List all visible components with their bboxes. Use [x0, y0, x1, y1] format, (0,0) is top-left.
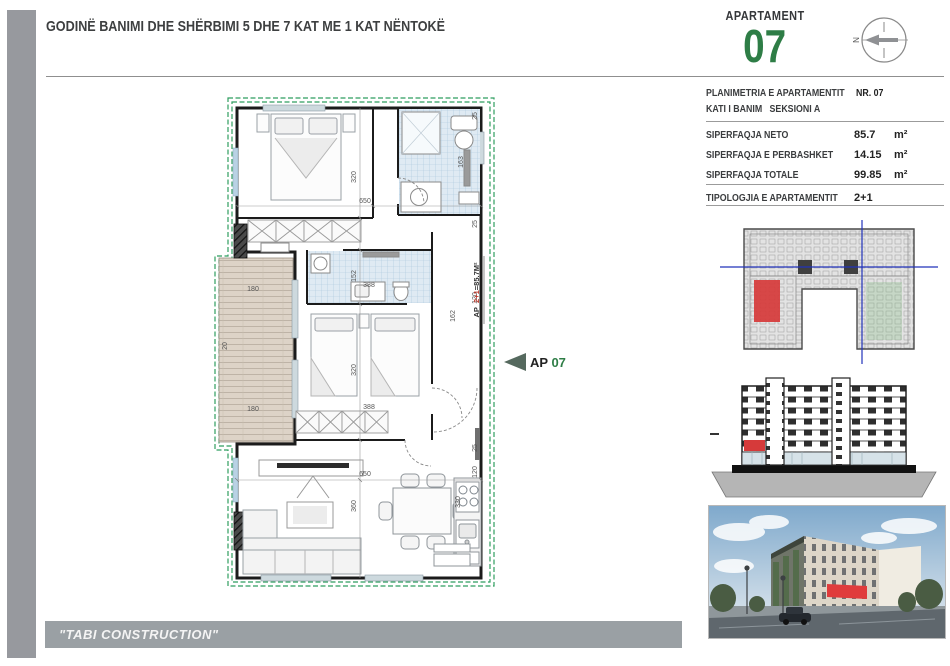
apartment-number: 07 [744, 24, 787, 68]
page-title: GODINË BANIMI DHE SHËRBIMI 5 DHE 7 KAT M… [46, 18, 521, 35]
area-totale-value: 99.85 [854, 169, 882, 181]
planimetria-label: PLANIMETRIA E APARTAMENTIT [706, 87, 845, 99]
svg-text:AP_2+1=85.7M²: AP_2+1=85.7M² [472, 262, 481, 318]
key-plan [714, 214, 944, 369]
area-totale-label: SIPERFAQJA TOTALE [706, 169, 798, 181]
tipologjia-label: TIPOLOGJIA E APARTAMENTIT [706, 192, 838, 204]
left-accent-bar [7, 10, 36, 658]
header-divider [46, 76, 944, 77]
svg-text:650: 650 [359, 471, 371, 478]
svg-text:180: 180 [247, 286, 259, 293]
building-render-photo [708, 505, 946, 639]
area-neto-value: 85.7 [854, 129, 875, 141]
info-divider-3 [706, 205, 944, 206]
render-building [771, 536, 921, 618]
section-highlight-unit [744, 440, 765, 451]
nr-label: NR. [856, 87, 871, 99]
svg-text:25: 25 [472, 444, 479, 452]
info-divider-1 [706, 121, 944, 122]
brand-name: "TABI CONSTRUCTION" [59, 627, 219, 642]
tipologjia-value: 2+1 [854, 192, 873, 204]
render-highlight-unit [827, 584, 867, 599]
seksioni-label: SEKSIONI A [770, 103, 821, 115]
svg-text:320: 320 [351, 364, 358, 376]
area-perbashket-value: 14.15 [854, 149, 882, 161]
svg-text:25: 25 [472, 220, 479, 228]
info-divider-2 [706, 184, 944, 185]
svg-text:388: 388 [363, 282, 375, 289]
area-neto-unit: m² [894, 129, 907, 141]
svg-text:120: 120 [472, 466, 479, 478]
svg-text:360: 360 [351, 500, 358, 512]
page: GODINË BANIMI DHE SHËRBIMI 5 DHE 7 KAT M… [0, 0, 950, 666]
section-tower-left [766, 378, 784, 465]
pointer-ap-number: 07 [551, 355, 565, 370]
page-title-text: GODINË BANIMI DHE SHËRBIMI 5 DHE 7 KAT M… [46, 18, 445, 35]
apartment-header: APARTAMENT 07 [700, 8, 830, 68]
svg-text:163: 163 [458, 156, 465, 168]
pointer-arrow-icon [504, 352, 526, 372]
section-base [732, 465, 916, 473]
double-bed-icon [257, 114, 355, 200]
section-ground [712, 472, 936, 497]
area-totale-unit: m² [894, 169, 907, 181]
svg-text:162: 162 [450, 310, 457, 322]
key-plan-highlight-unit [754, 280, 780, 322]
area-perbashket-unit: m² [894, 149, 907, 161]
wardrobe-corridor-icon [248, 220, 361, 242]
kati-label: KATI I BANIM [706, 103, 762, 115]
apartment-info-panel: PLANIMETRIA E APARTAMENTIT NR. 07 KATI I… [706, 84, 944, 208]
area-neto-label: SIPERFAQJA NETO [706, 129, 788, 141]
svg-text:20: 20 [222, 342, 229, 350]
section-tower-right [832, 378, 850, 465]
pointer-ap-label: AP [530, 355, 548, 370]
area-perbashket-label: SIPERFAQJA E PERBASHKET [706, 149, 833, 161]
svg-text:180: 180 [247, 406, 259, 413]
building-section [704, 372, 944, 500]
svg-text:152: 152 [351, 270, 358, 282]
nr-value: 07 [874, 87, 884, 99]
compass-icon: N [852, 6, 914, 70]
svg-text:25: 25 [472, 112, 479, 120]
svg-text:330: 330 [455, 496, 462, 508]
apartment-pointer: AP 07 [504, 352, 566, 372]
svg-text:388: 388 [363, 404, 375, 411]
svg-text:650: 650 [359, 198, 371, 205]
floor-plan: 650 320 152 320 360 180 180 388 388 650 … [213, 92, 513, 592]
brand-bar: "TABI CONSTRUCTION" [45, 621, 682, 648]
svg-text:320: 320 [351, 171, 358, 183]
wardrobe-bedroom2-icon [296, 411, 388, 433]
compass-north-label: N [852, 37, 861, 43]
